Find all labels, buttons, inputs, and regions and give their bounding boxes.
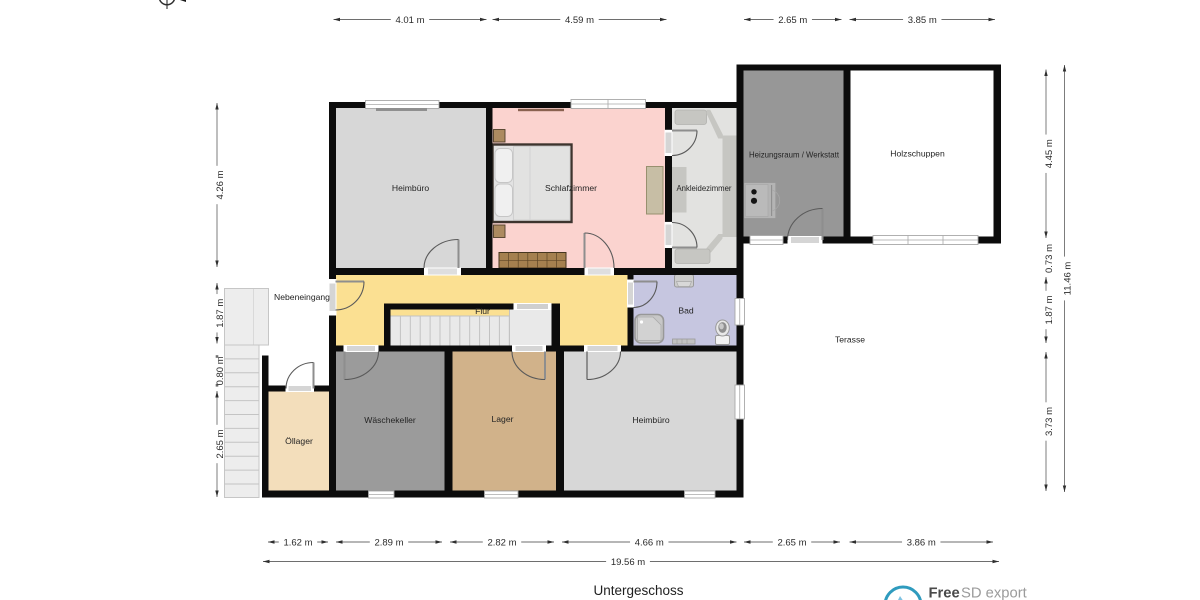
svg-text:3.73 m: 3.73 m	[1044, 407, 1055, 436]
svg-text:Terasse: Terasse	[835, 335, 865, 345]
svg-text:1.62 m: 1.62 m	[283, 537, 312, 548]
svg-text:Heimbüro: Heimbüro	[632, 415, 669, 425]
svg-text:Bad: Bad	[678, 306, 694, 316]
svg-text:2.82 m: 2.82 m	[487, 537, 516, 548]
svg-text:Untergeschoss: Untergeschoss	[593, 583, 683, 598]
svg-text:4.66 m: 4.66 m	[635, 537, 664, 548]
svg-text:4.45 m: 4.45 m	[1044, 139, 1055, 168]
svg-text:Öllager: Öllager	[285, 436, 313, 446]
svg-text:Heizungsraum / Werkstatt: Heizungsraum / Werkstatt	[749, 151, 840, 160]
svg-text:2.89 m: 2.89 m	[374, 537, 403, 548]
svg-text:Heimbüro: Heimbüro	[392, 183, 429, 193]
svg-text:Wäschekeller: Wäschekeller	[364, 415, 416, 425]
svg-text:0.73 m: 0.73 m	[1044, 244, 1055, 273]
svg-text:2.65 m: 2.65 m	[777, 537, 806, 548]
svg-text:Schlafzimmer: Schlafzimmer	[545, 183, 597, 193]
svg-text:0.80 m: 0.80 m	[215, 356, 226, 385]
svg-text:2.65 m: 2.65 m	[778, 15, 807, 26]
svg-text:Holzschuppen: Holzschuppen	[890, 149, 945, 159]
svg-text:Lager: Lager	[492, 414, 514, 424]
svg-text:Ankleidezimmer: Ankleidezimmer	[677, 184, 732, 193]
svg-text:Free: Free	[929, 586, 960, 600]
svg-text:Flur: Flur	[475, 306, 490, 316]
svg-text:4.59 m: 4.59 m	[565, 15, 594, 26]
svg-text:SD export: SD export	[961, 586, 1027, 600]
svg-text:11.46 m: 11.46 m	[1062, 262, 1073, 296]
svg-text:4.01 m: 4.01 m	[395, 15, 424, 26]
svg-text:1.87 m: 1.87 m	[1044, 295, 1055, 324]
svg-text:4.26 m: 4.26 m	[215, 170, 226, 199]
svg-text:Nebeneingang: Nebeneingang	[274, 292, 330, 302]
svg-text:1.87 m: 1.87 m	[215, 299, 226, 328]
svg-text:19.56 m: 19.56 m	[611, 557, 645, 568]
svg-text:3.85 m: 3.85 m	[908, 15, 937, 26]
svg-text:2.65 m: 2.65 m	[215, 429, 226, 458]
svg-text:3.86 m: 3.86 m	[907, 537, 936, 548]
